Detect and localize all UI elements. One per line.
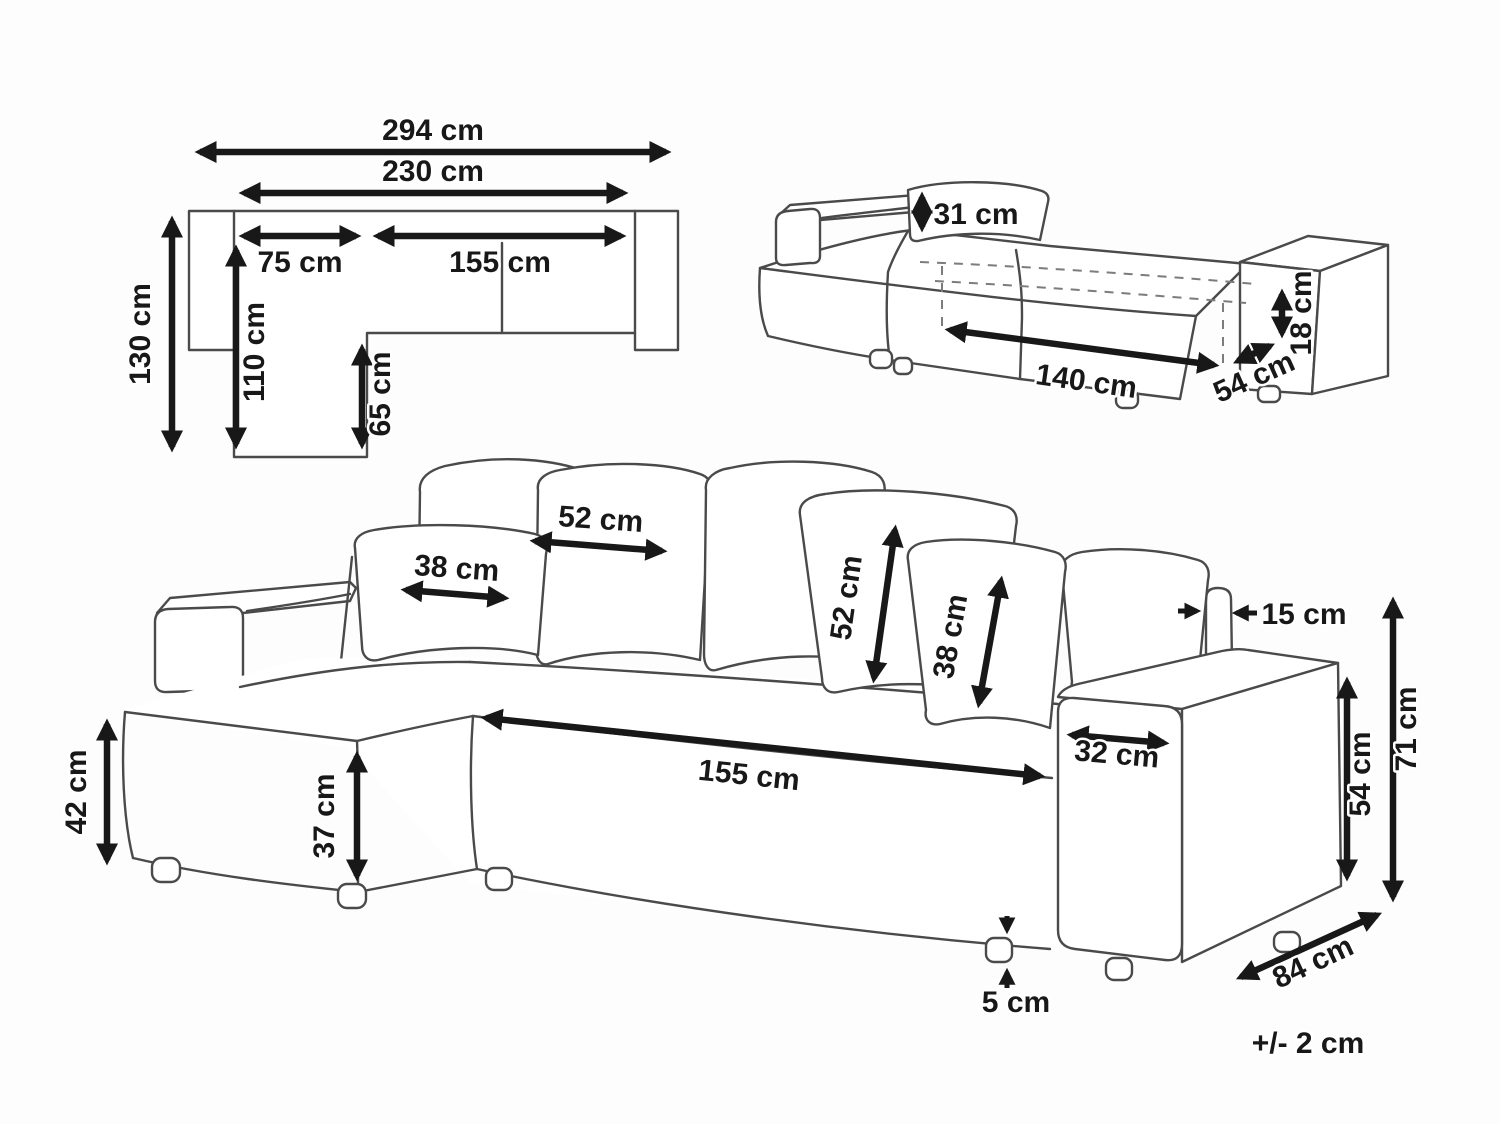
sofa-right-armrest-side <box>1182 663 1341 962</box>
leg <box>986 938 1012 962</box>
cushion-small-width-label: 38 cm <box>413 549 500 588</box>
tolerance-note: +/- 2 cm <box>1252 1027 1365 1060</box>
total-width-label: 294 cm <box>382 114 484 147</box>
chaise-depth-label: 110 cm <box>238 302 271 402</box>
sofa-view: 42 cm 37 cm 155 cm 52 cm 38 cm 52 cm 38 … <box>60 459 1423 1019</box>
seat-underlay <box>118 657 1062 952</box>
plan-view: 294 cm 230 cm 75 cm 155 cm 130 cm 110 cm… <box>124 114 678 457</box>
chaise-seat-height-label: 42 cm <box>60 749 93 834</box>
leg-height-label: 5 cm <box>982 986 1050 1019</box>
leg <box>894 358 912 374</box>
overall-height-label: 71 cm <box>1390 686 1423 771</box>
bed-view: 31 cm 140 cm 54 cm 18 cm <box>759 182 1388 409</box>
leg <box>338 884 366 908</box>
chaise-width-label: 75 cm <box>257 246 342 279</box>
frame-height-label: 18 cm <box>1285 270 1318 355</box>
chaise-left-edge <box>123 712 133 858</box>
total-depth-label: 130 cm <box>124 283 157 385</box>
backrest-edge <box>341 557 352 661</box>
seat-depth-label: 65 cm <box>364 351 397 436</box>
sofa-dimensions-diagram: 294 cm 230 cm 75 cm 155 cm 130 cm 110 cm… <box>0 0 1500 1124</box>
chaise-front-height-label: 37 cm <box>308 773 341 858</box>
plan-seat-width-label: 155 cm <box>449 246 551 279</box>
inner-width-label: 230 cm <box>382 155 484 188</box>
leg <box>870 350 892 368</box>
sofa-left-armrest-front <box>155 607 243 692</box>
leg <box>486 868 512 890</box>
leg <box>152 858 180 882</box>
backrest-height-label: 31 cm <box>933 198 1018 231</box>
leg <box>1106 958 1132 980</box>
cushion-large-width-label: 52 cm <box>557 500 644 539</box>
armrest-height-label: 54 cm <box>1344 731 1377 816</box>
chaise-right-bottom-edge <box>358 869 477 892</box>
backrest-thickness-label: 15 cm <box>1261 598 1346 631</box>
diagram-canvas: 294 cm 230 cm 75 cm 155 cm 130 cm 110 cm… <box>0 0 1500 1124</box>
cushion-small <box>908 540 1066 728</box>
bed-left-armrest-front <box>776 209 820 265</box>
cushion <box>536 464 711 664</box>
